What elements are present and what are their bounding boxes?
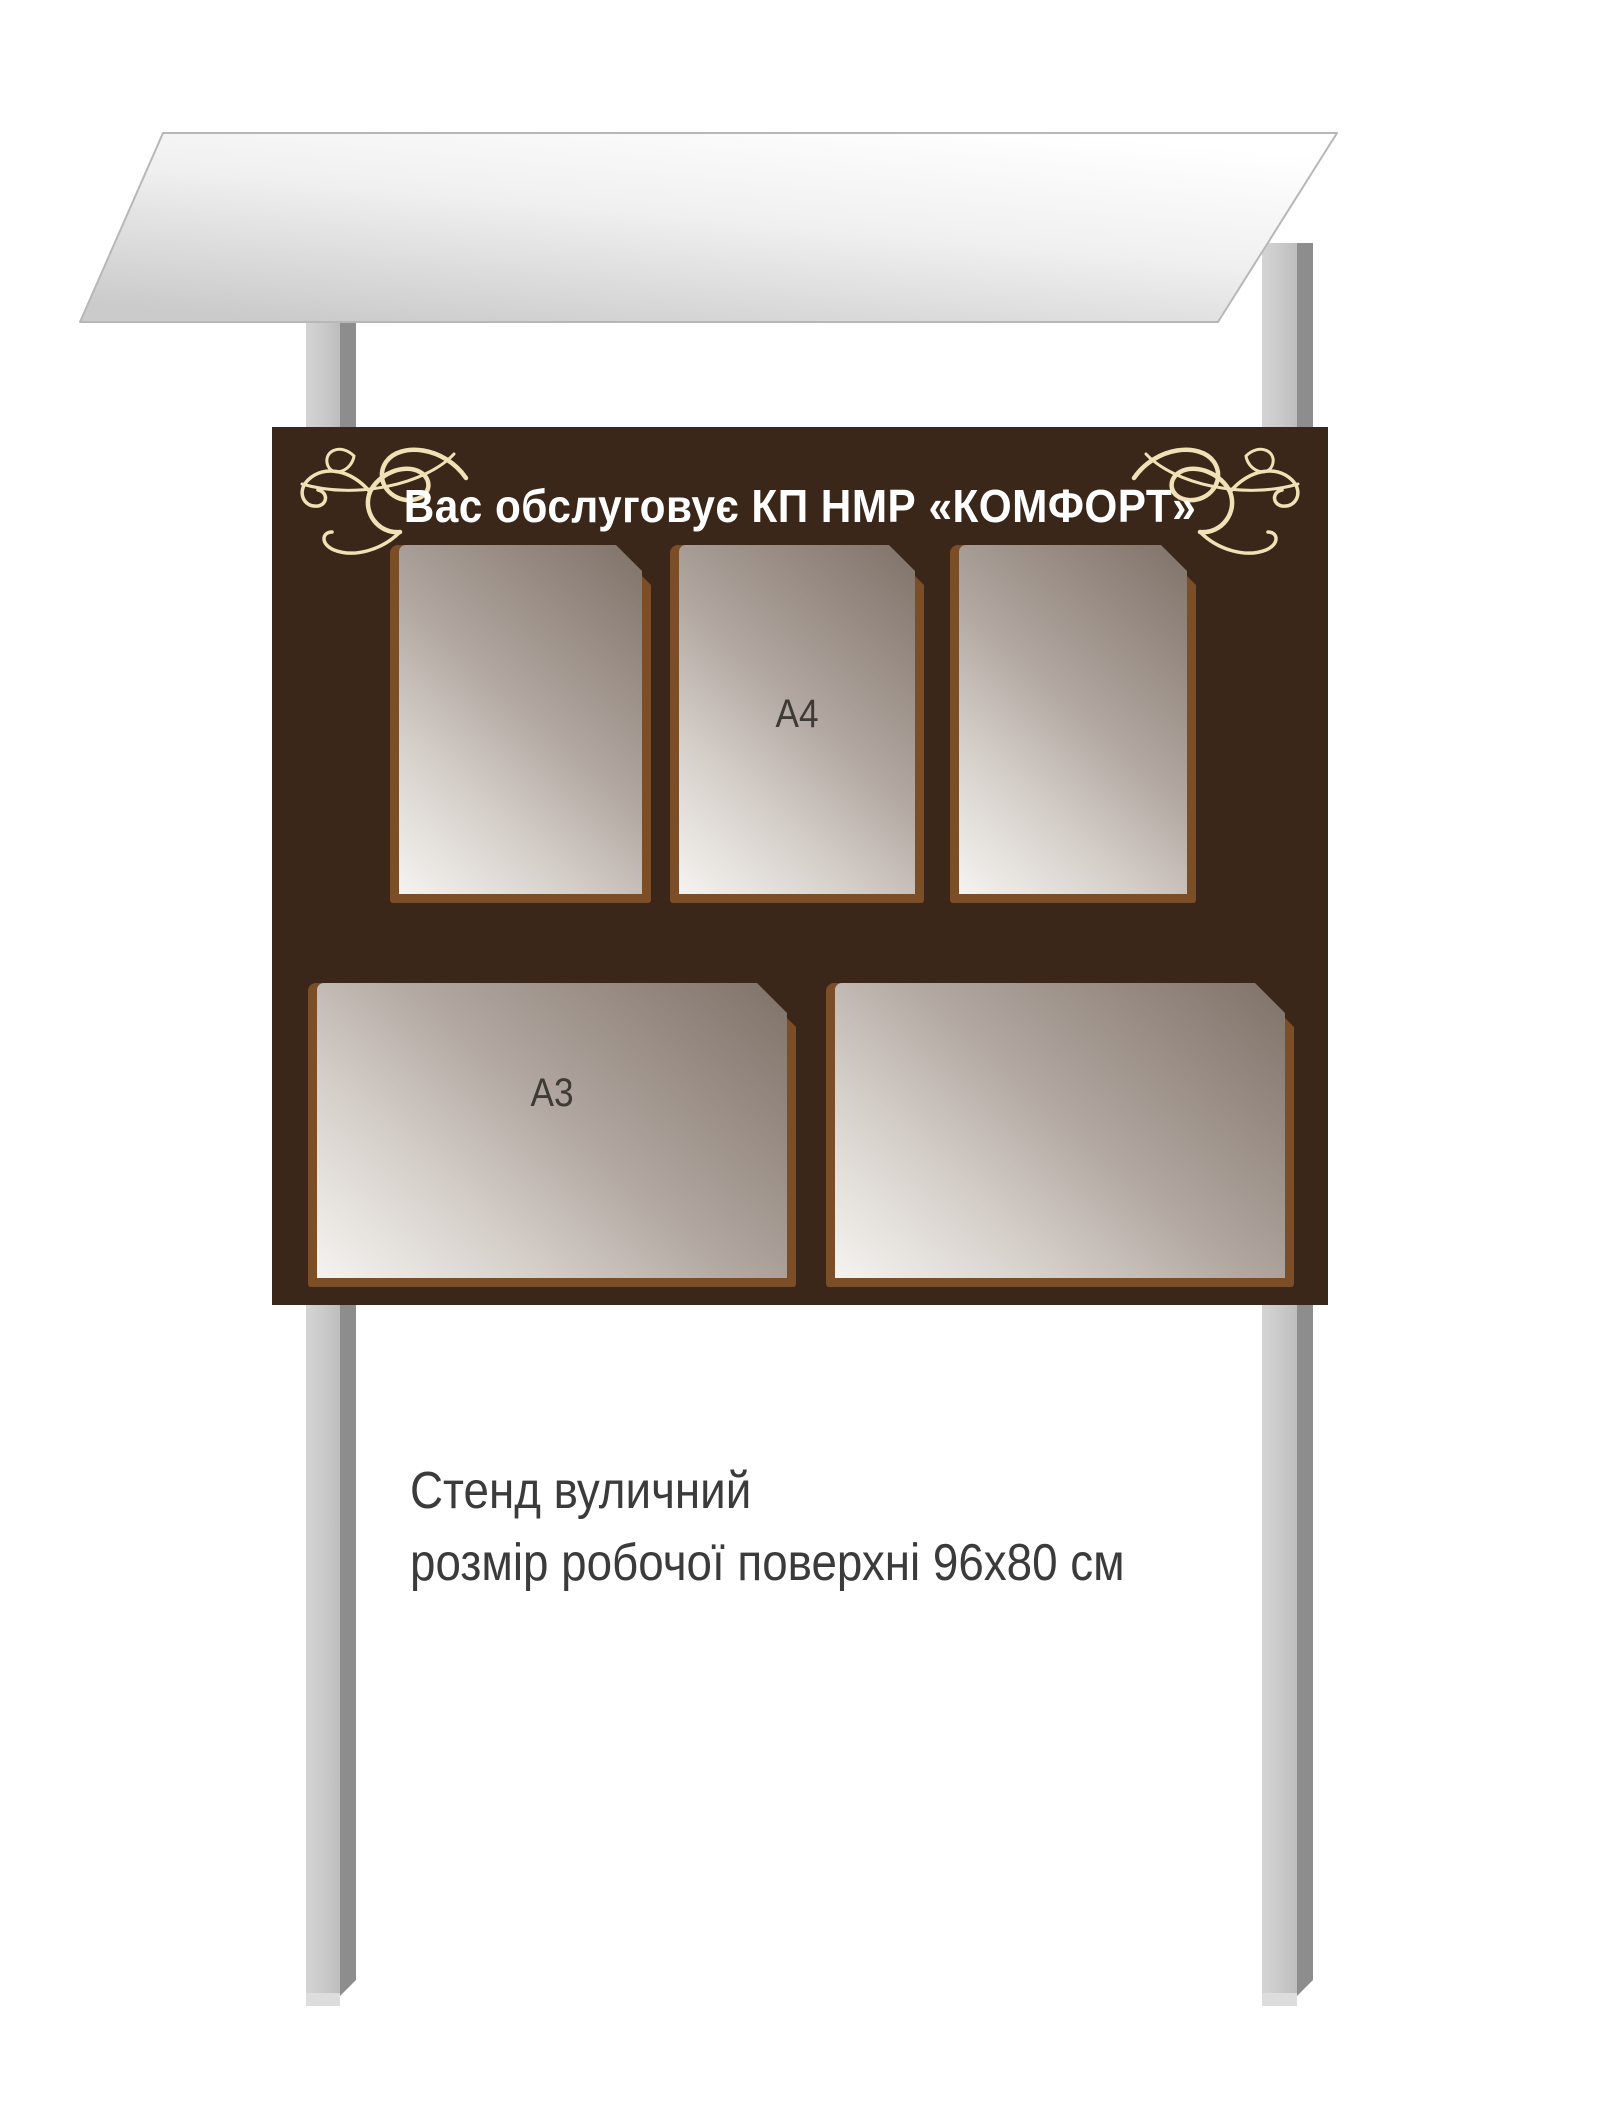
pocket-size-label-a3: А3 — [337, 1071, 766, 1116]
roof-panel — [80, 133, 1337, 322]
pocket-a4-1 — [390, 545, 651, 903]
stand-description: Стенд вуличний розмір робочої поверхні 9… — [410, 1455, 1125, 1599]
pocket-window — [399, 545, 642, 894]
pocket-a3-2 — [826, 983, 1294, 1287]
pocket-window — [835, 983, 1285, 1278]
roof-canopy — [70, 124, 1410, 329]
pocket-size-label-a4: А4 — [685, 692, 909, 737]
stand-description-line2: розмір робочої поверхні 96х80 см — [410, 1527, 1125, 1599]
pocket-window — [317, 983, 787, 1278]
pocket-a3-1: А3 — [308, 983, 796, 1287]
pocket-a4-2: А4 — [670, 545, 924, 903]
pocket-window — [959, 545, 1187, 894]
street-stand-mockup: Вас обслуговує КП НМР «КОМФОРТ» А4 А3 Ст… — [0, 0, 1600, 2102]
board-title: Вас обслуговує КП НМР «КОМФОРТ» — [64, 479, 1536, 533]
pocket-a4-3 — [950, 545, 1196, 903]
stand-description-line1: Стенд вуличний — [410, 1455, 1125, 1527]
